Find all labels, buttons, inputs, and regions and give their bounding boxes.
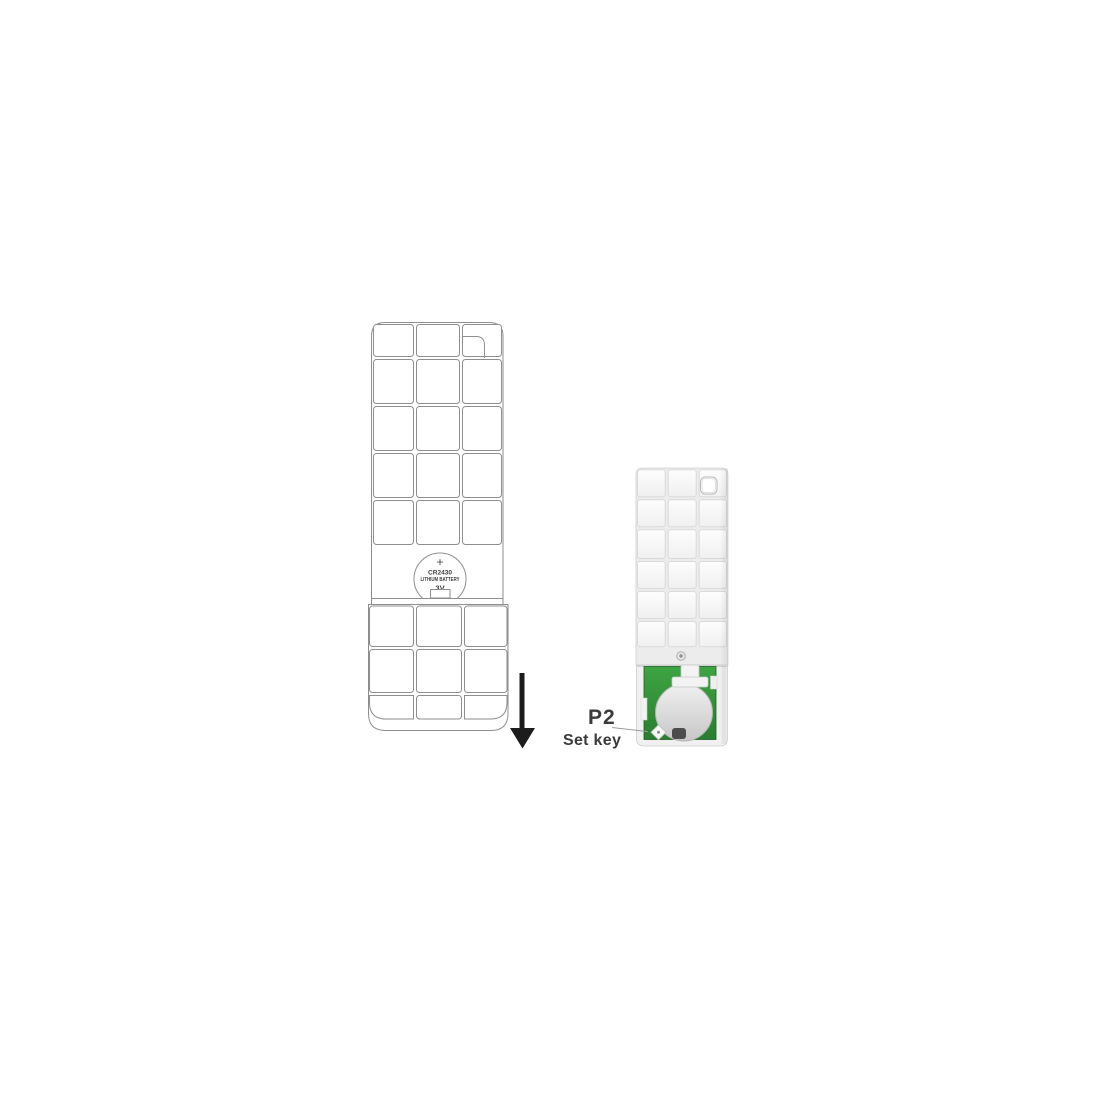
back-grid-cell [374, 325, 414, 357]
keypad-tile [668, 562, 696, 589]
compartment-right-shading [722, 666, 727, 744]
cover-grid-cell [417, 650, 462, 693]
body-edge-shading [720, 468, 728, 665]
battery-clip-outline [431, 590, 451, 599]
cover-grid-cell [417, 696, 462, 720]
compartment-right-tab [711, 676, 718, 689]
battery-compartment [637, 665, 728, 746]
battery-polarity-label: + [436, 555, 443, 569]
cover-grid-cell [370, 606, 414, 647]
battery-clip-tab [681, 665, 699, 679]
lanyard-hole [701, 477, 718, 494]
back-grid-cell [374, 407, 414, 451]
back-grid-cell [463, 407, 502, 451]
battery-contact [672, 728, 686, 739]
back-grid-cell [463, 454, 502, 498]
cover-grid [370, 606, 508, 693]
back-grid-cell [374, 454, 414, 498]
back-grid-cell [374, 501, 414, 545]
keypad-tile [638, 562, 666, 589]
keypad-tile [638, 530, 666, 559]
cover-grid-cell [465, 696, 508, 720]
cover-grid-cell [465, 606, 508, 647]
back-cover-outline-diagram: + CR2430 LITHIUM BATTERY 3V [360, 315, 550, 775]
keypad-tile [668, 530, 696, 559]
cover-edge-bar [372, 599, 504, 605]
keypad-tile [668, 622, 696, 647]
keypad-tile [638, 470, 666, 497]
back-grid-cell [417, 454, 460, 498]
cover-grid-cell [370, 696, 414, 720]
back-grid-cell [463, 501, 502, 545]
illustration-canvas: + CR2430 LITHIUM BATTERY 3V [0, 0, 1100, 1100]
cover-grid-cell [417, 606, 462, 647]
keypad-tile [668, 470, 696, 497]
remote-open-photo [620, 460, 760, 760]
keypad-tile [668, 500, 696, 527]
keypad-tile [668, 592, 696, 619]
set-key-label: Set key [563, 732, 621, 750]
screw-hole [677, 652, 686, 661]
cover-grid-cell [370, 650, 414, 693]
back-grid-cell [417, 360, 460, 404]
back-grid-cell [463, 360, 502, 404]
compartment-left-tab [641, 698, 647, 720]
back-grid-cell [417, 325, 460, 357]
cover-grid-cell [465, 650, 508, 693]
battery-outline-group: + CR2430 LITHIUM BATTERY 3V [414, 553, 466, 605]
keypad-tile [638, 500, 666, 527]
battery-model-label: CR2430 [428, 571, 453, 577]
battery-type-label: LITHIUM BATTERY [421, 577, 460, 583]
back-grid-cell [463, 325, 502, 357]
slide-direction-arrow [510, 673, 535, 749]
keypad-tile [638, 592, 666, 619]
battery-clip-bracket [672, 677, 708, 687]
figure-page: { "figure": { "left_outline": { "battery… [0, 0, 1100, 1100]
back-grid-cell [417, 501, 460, 545]
back-grid-cell [417, 407, 460, 451]
back-grid-cell [374, 360, 414, 404]
keypad-tile [638, 622, 666, 647]
remote-back-cover [636, 468, 728, 665]
